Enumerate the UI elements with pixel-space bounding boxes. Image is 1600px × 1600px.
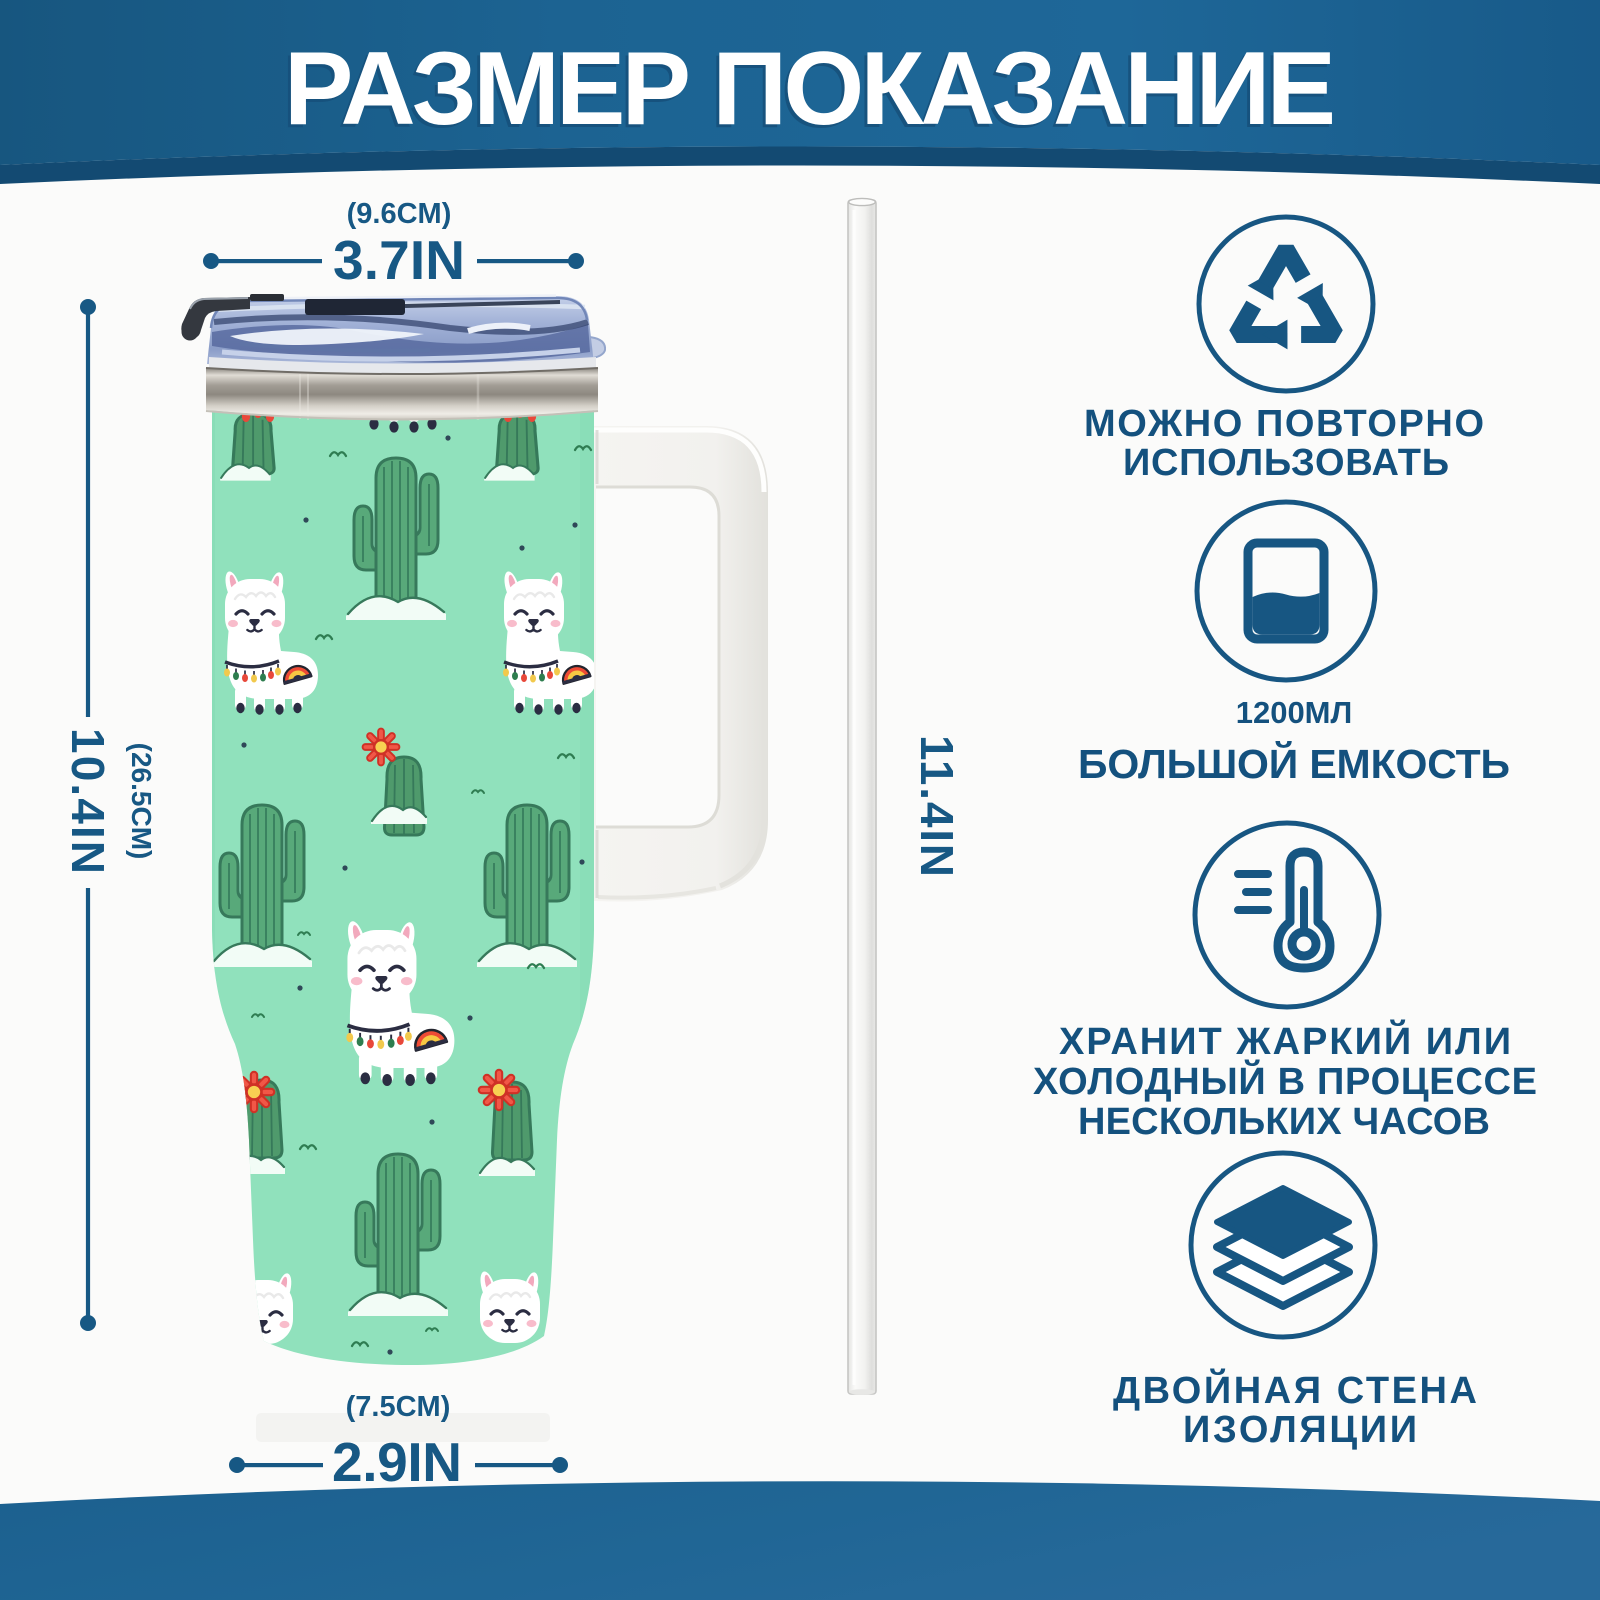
- svg-text:(7.5CM): (7.5CM): [346, 1391, 451, 1423]
- svg-text:11.4IN: 11.4IN: [911, 735, 963, 877]
- svg-text:НЕСКОЛЬКИХ ЧАСОВ: НЕСКОЛЬКИХ ЧАСОВ: [1078, 1101, 1490, 1143]
- svg-text:2.9IN: 2.9IN: [332, 1431, 462, 1493]
- svg-text:(9.6CM): (9.6CM): [347, 198, 452, 230]
- svg-text:БОЛЬШОЙ ЕМКОСТЬ: БОЛЬШОЙ ЕМКОСТЬ: [1078, 741, 1510, 787]
- svg-text:ДВОЙНАЯ СТЕНА: ДВОЙНАЯ СТЕНА: [1113, 1367, 1477, 1412]
- svg-text:ХРАНИТ ЖАРКИЙ ИЛИ: ХРАНИТ ЖАРКИЙ ИЛИ: [1059, 1018, 1511, 1063]
- svg-text:10.4IN: 10.4IN: [62, 728, 114, 874]
- svg-text:1200МЛ: 1200МЛ: [1236, 695, 1353, 730]
- svg-text:ИЗОЛЯЦИИ: ИЗОЛЯЦИИ: [1183, 1409, 1417, 1451]
- svg-text:(26.5CM): (26.5CM): [126, 743, 157, 860]
- svg-text:3.7IN: 3.7IN: [333, 229, 465, 291]
- svg-text:ИСПОЛЬЗОВАТЬ: ИСПОЛЬЗОВАТЬ: [1123, 442, 1449, 484]
- svg-text:РАЗМЕР ПОКАЗАНИЕ: РАЗМЕР ПОКАЗАНИЕ: [284, 31, 1336, 147]
- svg-text:ХОЛОДНЫЙ В ПРОЦЕССЕ: ХОЛОДНЫЙ В ПРОЦЕССЕ: [1033, 1058, 1537, 1103]
